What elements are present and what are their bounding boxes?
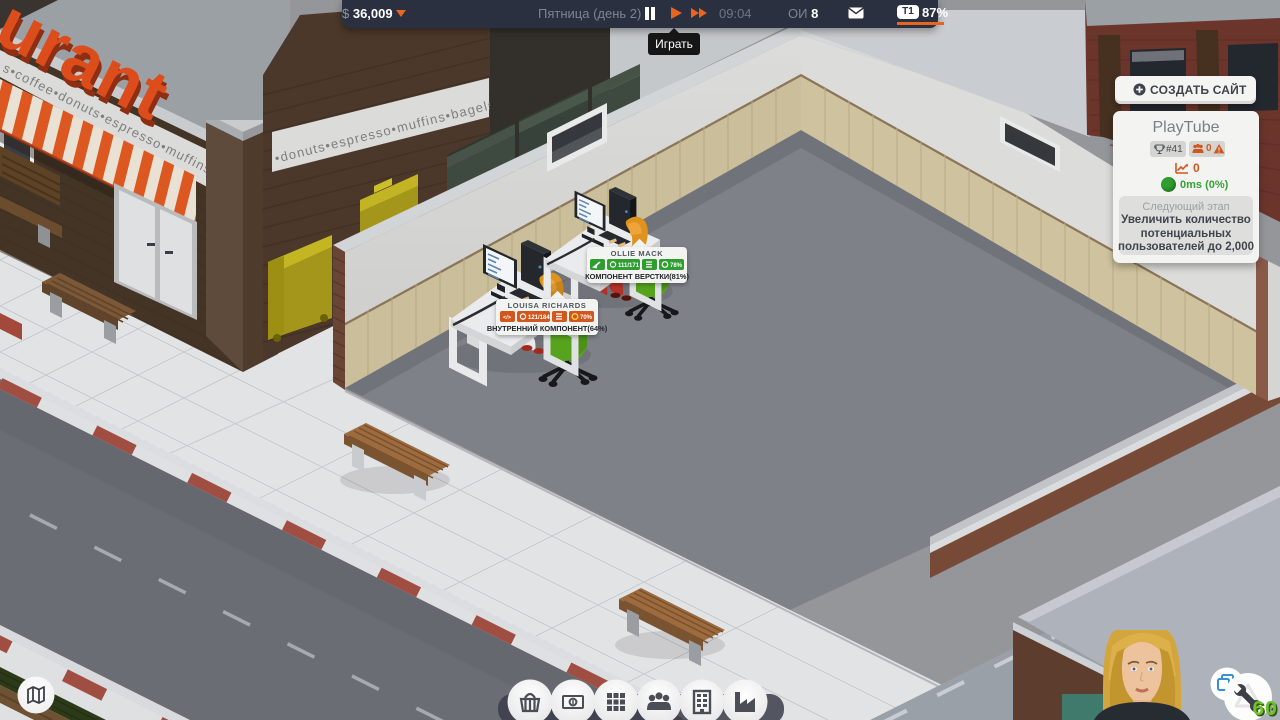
- svg-text:121/184: 121/184: [528, 315, 550, 321]
- svg-text:</>: </>: [503, 315, 511, 321]
- svg-text:70%: 70%: [580, 315, 593, 321]
- svg-text:78%: 78%: [670, 263, 683, 269]
- svg-text:111/171: 111/171: [618, 263, 640, 269]
